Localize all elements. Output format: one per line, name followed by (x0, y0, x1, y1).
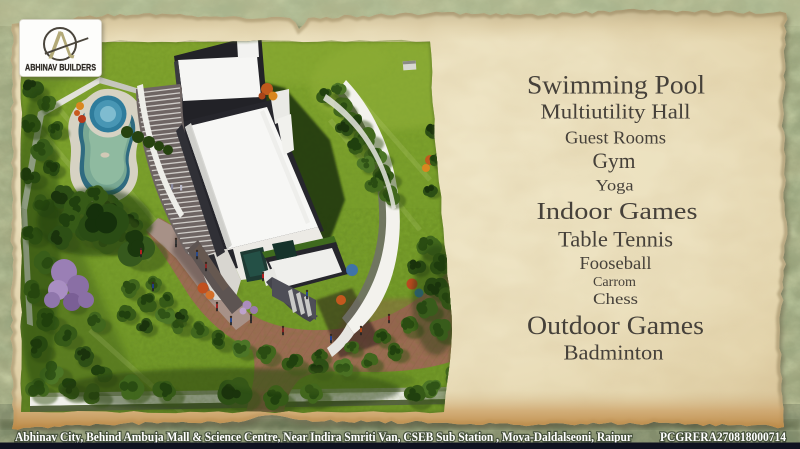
svg-text:Indoor Games: Indoor Games (537, 199, 698, 225)
svg-text:Outdoor Games: Outdoor Games (527, 310, 704, 340)
svg-text:Gym: Gym (593, 148, 636, 173)
svg-text:Guest Rooms: Guest Rooms (565, 128, 666, 148)
svg-text:Fooseball: Fooseball (580, 253, 652, 273)
svg-text:Abhinav City, Behind Ambuja Ma: Abhinav City, Behind Ambuja Mall & Scien… (15, 429, 632, 444)
svg-text:Table Tennis: Table Tennis (558, 227, 673, 252)
svg-text:Carrom: Carrom (593, 274, 637, 289)
svg-text:Swimming Pool: Swimming Pool (527, 71, 705, 100)
svg-text:Badminton: Badminton (564, 341, 665, 365)
svg-text:ABHINAV BUILDERS: ABHINAV BUILDERS (25, 63, 96, 73)
svg-text:Yoga: Yoga (596, 178, 634, 195)
svg-text:Chess: Chess (593, 291, 638, 308)
svg-text:PCGRERA270818000714: PCGRERA270818000714 (660, 429, 786, 444)
svg-text:Multiutility Hall: Multiutility Hall (541, 100, 691, 124)
